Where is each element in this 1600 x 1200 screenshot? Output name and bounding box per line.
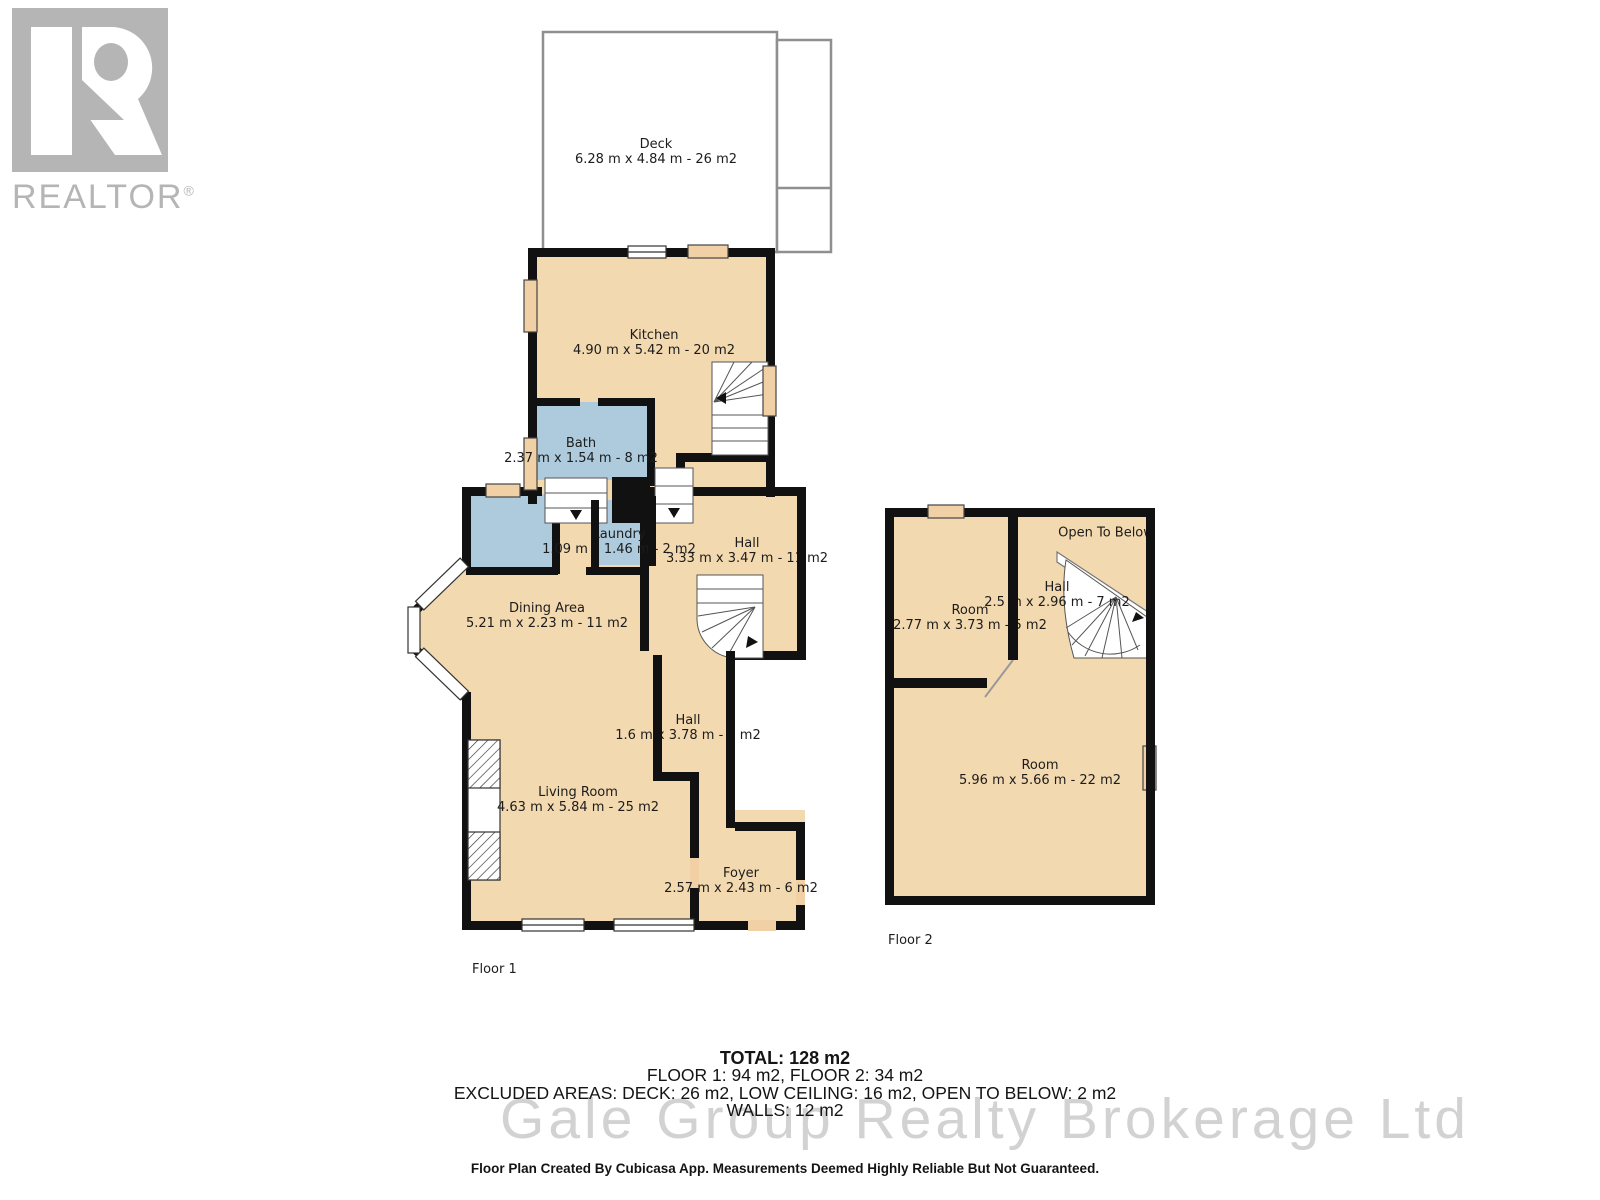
floor2-plan — [878, 503, 1163, 913]
kitchen-stairs-icon — [712, 362, 768, 455]
summary-walls: WALLS: 12 m2 — [250, 1102, 1320, 1120]
entry-steps-icon — [655, 468, 693, 523]
room-label-f2-hall: Hall 2.5 m x 2.96 m - 7 m2 — [984, 580, 1129, 610]
floor2-label: Floor 2 — [888, 933, 933, 948]
room-label-bath: Bath 2.37 m x 1.54 m - 8 m2 — [504, 436, 658, 466]
floor2-area — [885, 508, 1155, 905]
realtor-logo-bar — [31, 27, 72, 155]
room-label-foyer: Foyer 2.57 m x 2.43 m - 6 m2 — [664, 866, 818, 896]
room-label-dining: Dining Area 5.21 m x 2.23 m - 11 m2 — [466, 601, 628, 631]
realtor-logo-text: REALTOR® — [12, 178, 196, 217]
realtor-logo — [12, 8, 182, 180]
room-label-f2-room-large: Room 5.96 m x 5.66 m - 22 m2 — [959, 758, 1121, 788]
basement-stairs-icon — [545, 478, 607, 523]
room-label-deck: Deck 6.28 m x 4.84 m - 26 m2 — [575, 137, 737, 167]
floor1-label: Floor 1 — [472, 962, 517, 977]
disclaimer-text: Floor Plan Created By Cubicasa App. Meas… — [250, 1161, 1320, 1176]
fireplace-icon — [468, 740, 500, 880]
room-label-open-to-below: Open To Below — [1058, 526, 1154, 541]
room-label-hall-upper: Hall 3.33 m x 3.47 m - 11 m2 — [666, 536, 828, 566]
area-summary: TOTAL: 128 m2 FLOOR 1: 94 m2, FLOOR 2: 3… — [250, 1049, 1320, 1120]
room-label-kitchen: Kitchen 4.90 m x 5.42 m - 20 m2 — [573, 328, 735, 358]
room-label-living: Living Room 4.63 m x 5.84 m - 25 m2 — [497, 785, 659, 815]
summary-floors: FLOOR 1: 94 m2, FLOOR 2: 34 m2 — [250, 1067, 1320, 1085]
room-label-hall-lower: Hall 1.6 m x 3.78 m - 6 m2 — [615, 713, 760, 743]
